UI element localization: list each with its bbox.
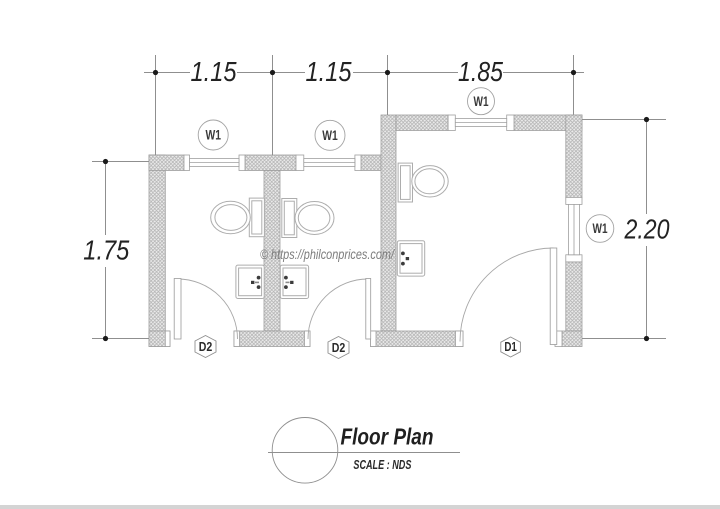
svg-text:1.15: 1.15 (191, 56, 237, 87)
svg-text:D2: D2 (199, 340, 213, 354)
svg-text:D2: D2 (332, 341, 346, 355)
svg-text:© https://philconprices.com/: © https://philconprices.com/ (260, 246, 396, 262)
svg-text:1.75: 1.75 (83, 235, 129, 266)
svg-text:W1: W1 (322, 128, 338, 143)
svg-text:1.85: 1.85 (458, 56, 503, 87)
svg-text:W1: W1 (474, 94, 489, 109)
svg-text:SCALE : NDS: SCALE : NDS (353, 457, 411, 472)
svg-text:1.15: 1.15 (306, 56, 352, 87)
svg-text:2.20: 2.20 (624, 214, 670, 245)
svg-text:W1: W1 (593, 221, 608, 236)
svg-text:D1: D1 (504, 340, 517, 354)
svg-text:Floor Plan: Floor Plan (341, 423, 434, 449)
svg-text:W1: W1 (205, 128, 221, 143)
